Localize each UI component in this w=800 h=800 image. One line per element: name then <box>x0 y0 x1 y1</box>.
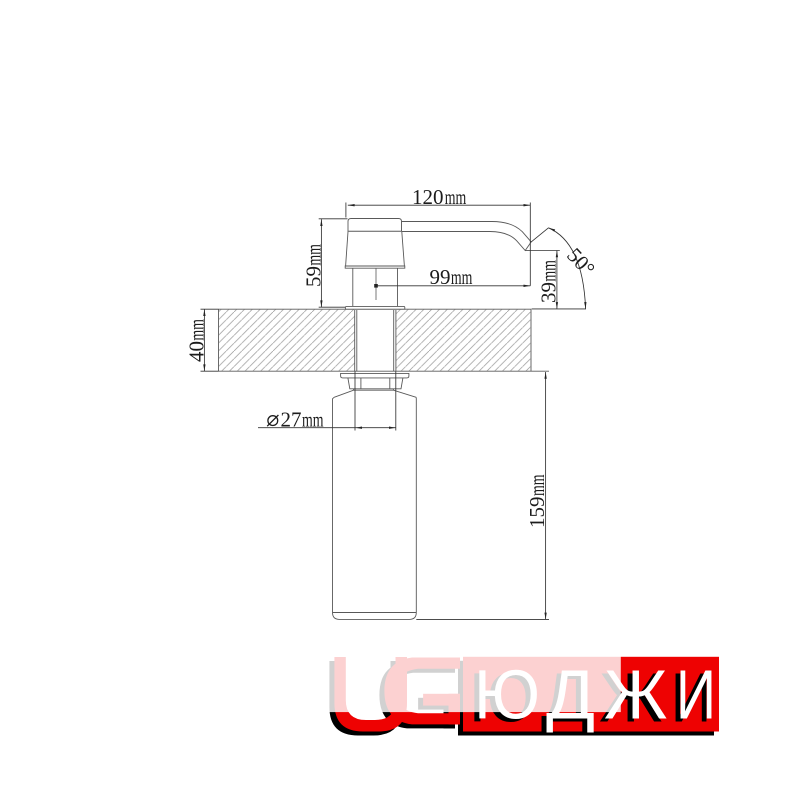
svg-text:59mm: 59mm <box>301 244 325 287</box>
svg-text:50°: 50° <box>562 243 600 281</box>
svg-text:39mm: 39mm <box>536 260 560 303</box>
svg-text:27mm: 27mm <box>281 408 324 432</box>
svg-text:40mm: 40mm <box>184 319 208 362</box>
svg-text:И: И <box>676 656 716 734</box>
svg-text:99mm: 99mm <box>430 265 473 289</box>
svg-text:120mm: 120mm <box>412 185 466 209</box>
svg-text:159mm: 159mm <box>525 475 549 529</box>
